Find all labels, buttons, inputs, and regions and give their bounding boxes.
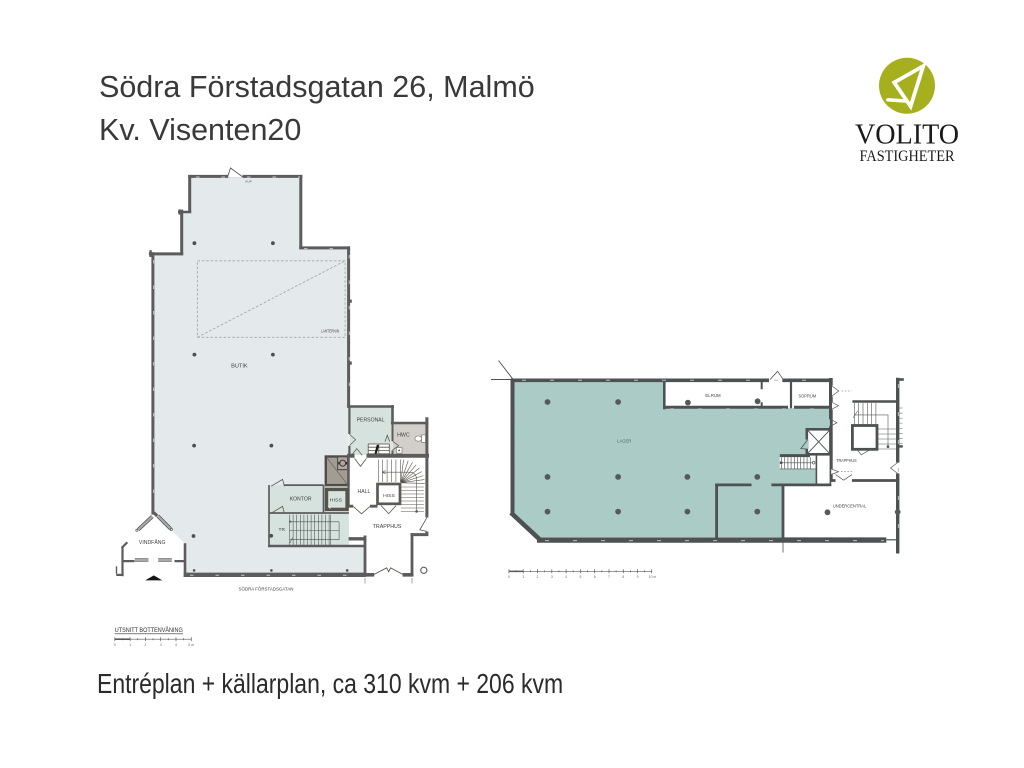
svg-text:4: 4 [565,575,567,579]
svg-text:0: 0 [508,575,510,579]
svg-text:2: 2 [537,575,539,579]
svg-text:LAGER: LAGER [617,438,631,444]
svg-text:7: 7 [608,575,610,579]
svg-text:ELRUM: ELRUM [705,393,720,398]
svg-text:10 m: 10 m [649,575,657,579]
svg-text:SOPRUM: SOPRUM [799,393,817,398]
svg-text:6: 6 [594,575,596,579]
svg-text:1: 1 [522,575,524,579]
svg-text:8: 8 [622,575,624,579]
svg-text:3: 3 [551,575,553,579]
svg-text:UNDERCENTRAL: UNDERCENTRAL [833,503,867,509]
svg-text:TRAPPHUS: TRAPPHUS [836,458,857,463]
svg-text:5: 5 [579,575,581,579]
svg-text:9: 9 [637,575,639,579]
